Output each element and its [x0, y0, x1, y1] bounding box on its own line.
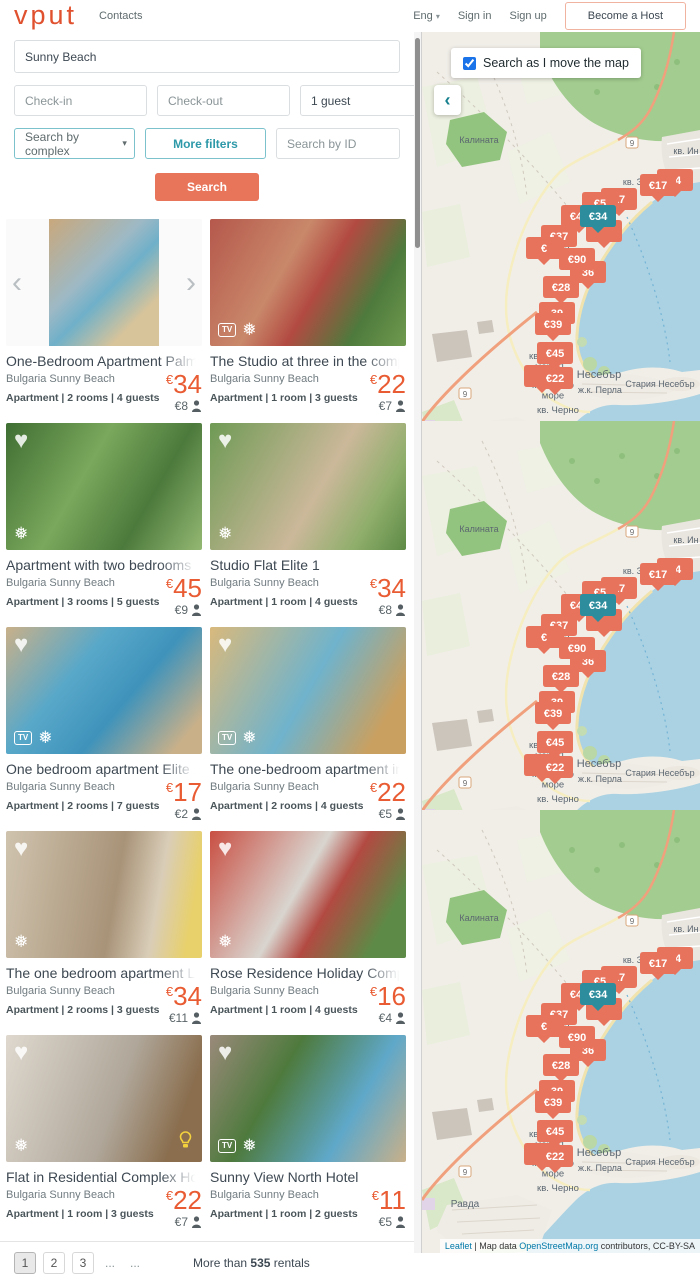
listing-card[interactable]: ♥ ❅ Rose Residence Holiday Complex Bulga… [210, 831, 406, 1025]
listing-card[interactable]: ♥ ❅ Apartment with two bedrooms in co Bu… [6, 423, 202, 617]
chevron-down-icon: ▾ [436, 12, 440, 21]
listing-price: €34 [166, 983, 202, 1009]
language-selector[interactable]: Eng ▾ [413, 10, 440, 22]
listing-price: €22 [370, 779, 406, 805]
listing-card[interactable]: ♥ TV ❅ The one-bedroom apartment in "El … [210, 627, 406, 821]
tv-icon: TV [218, 731, 236, 745]
complex-select-value: Search by complex [14, 128, 135, 159]
favorite-heart-icon[interactable]: ♥ [14, 429, 28, 453]
nav-contacts[interactable]: Contacts [99, 10, 142, 22]
tv-icon: TV [14, 731, 32, 745]
listing-meta: Apartment | 1 room | 2 guests [210, 1208, 358, 1220]
listing-location: Bulgaria Sunny Beach [210, 1189, 358, 1201]
listing-card[interactable]: ♥ ❅ Studio Flat Elite 1 Bulgaria Sunny B… [210, 423, 406, 617]
per-person-price: €7 [379, 399, 392, 413]
destination-input[interactable] [14, 40, 400, 73]
person-icon [395, 400, 406, 412]
listing-card[interactable]: TV ❅ The Studio at three in the complex … [210, 219, 406, 413]
snowflake-icon: ❅ [14, 1137, 28, 1154]
snowflake-icon: ❅ [218, 933, 232, 950]
favorite-heart-icon[interactable]: ♥ [218, 837, 232, 861]
listing-price: €22 [370, 371, 406, 397]
listing-location: Bulgaria Sunny Beach [6, 577, 160, 589]
listing-title[interactable]: One bedroom apartment Elite 1 [6, 761, 202, 779]
per-person-price: €2 [175, 807, 188, 821]
per-person-price: €4 [379, 1011, 392, 1025]
guests-input[interactable] [300, 85, 424, 116]
listing-price: €16 [370, 983, 406, 1009]
person-icon [395, 1012, 406, 1024]
person-icon [395, 604, 406, 616]
listing-title[interactable]: One-Bedroom Apartment Palm Com [6, 353, 202, 371]
list-scrollbar[interactable] [414, 32, 421, 1253]
listing-meta: Apartment | 1 room | 4 guests [210, 596, 358, 608]
pagination-ellipsis[interactable]: ... [130, 1256, 140, 1270]
favorite-heart-icon[interactable]: ♥ [218, 633, 232, 657]
person-icon [395, 808, 406, 820]
per-person-price: €5 [379, 807, 392, 821]
favorite-heart-icon[interactable]: ♥ [14, 633, 28, 657]
listing-price: €22 [166, 1187, 202, 1213]
person-icon [191, 1012, 202, 1024]
listing-title[interactable]: Flat in Residential Complex Holiday [6, 1169, 202, 1187]
listing-meta: Apartment | 1 room | 4 guests [210, 1004, 358, 1016]
listing-location: Bulgaria Sunny Beach [210, 985, 358, 997]
listing-location: Bulgaria Sunny Beach [6, 781, 160, 793]
become-host-button[interactable]: Become a Host [565, 2, 686, 30]
listing-location: Bulgaria Sunny Beach [210, 781, 364, 793]
listing-photo[interactable]: ♥ ❅ [6, 423, 202, 550]
map-attribution: Leaflet | Map data OpenStreetMap.org con… [440, 1239, 700, 1253]
osm-link[interactable]: OpenStreetMap.org [519, 1241, 598, 1251]
search-panel: Search by complex ▾ More filters Search [0, 32, 414, 215]
listing-photo-image [49, 219, 159, 346]
listing-meta: Apartment | 2 rooms | 7 guests [6, 800, 160, 812]
snowflake-icon: ❅ [14, 933, 28, 950]
snowflake-icon: ❅ [242, 729, 256, 746]
person-icon [191, 604, 202, 616]
snowflake-icon: ❅ [38, 729, 52, 746]
listing-meta: Apartment | 3 rooms | 5 guests [6, 596, 160, 608]
map-tile-section[interactable] [422, 810, 700, 1253]
listing-title[interactable]: Sunny View North Hotel [210, 1169, 406, 1187]
snowflake-icon: ❅ [218, 525, 232, 542]
listing-photo[interactable]: ♥ TV ❅ [210, 627, 406, 754]
listing-photo[interactable]: ♥ TV ❅ [210, 1035, 406, 1162]
carousel-next-icon[interactable]: › [186, 268, 196, 298]
listing-price: €11 [372, 1187, 406, 1213]
map-tile-section[interactable] [422, 32, 700, 421]
page-button-1[interactable]: 1 [14, 1252, 36, 1274]
page-button-3[interactable]: 3 [72, 1252, 94, 1274]
language-label: Eng [413, 10, 433, 22]
snowflake-icon: ❅ [242, 321, 256, 338]
listing-photo[interactable]: ♥ ❅ [6, 831, 202, 958]
sign-in-link[interactable]: Sign in [458, 10, 492, 22]
search-by-id-input[interactable] [276, 128, 400, 159]
listings-panel: Search by complex ▾ More filters Search … [0, 32, 414, 1284]
listing-meta: Apartment | 2 rooms | 3 guests [6, 1004, 160, 1016]
pagination-ellipsis[interactable]: ... [105, 1256, 115, 1270]
lamp-icon [179, 1131, 192, 1154]
carousel-prev-icon[interactable]: ‹ [12, 268, 22, 298]
listing-price: €34 [166, 371, 202, 397]
results-count-text: More than 535 rentals [193, 1256, 310, 1270]
search-move-map-label[interactable]: Search as I move the map [483, 56, 629, 70]
listing-card[interactable]: ♥ TV ❅ Sunny View North Hotel Bulgaria S… [210, 1035, 406, 1229]
listing-title[interactable]: Rose Residence Holiday Complex [210, 965, 406, 983]
person-icon [191, 400, 202, 412]
listing-photo[interactable]: ‹ › [6, 219, 202, 346]
per-person-price: €11 [169, 1011, 188, 1025]
snowflake-icon: ❅ [14, 525, 28, 542]
listing-location: Bulgaria Sunny Beach [210, 373, 358, 385]
snowflake-icon: ❅ [242, 1137, 256, 1154]
listing-location: Bulgaria Sunny Beach [6, 1189, 154, 1201]
map-panel[interactable]: Калинатакв. Инкв. Зокв. Камкакв. Черномо… [421, 32, 700, 1253]
listing-location: Bulgaria Sunny Beach [210, 577, 358, 589]
listing-meta: Apartment | 1 room | 3 guests [6, 1208, 154, 1220]
listing-photo[interactable]: ♥ TV ❅ [6, 627, 202, 754]
listing-card[interactable]: ♥ ❅ The one bedroom apartment Lifest Bul… [6, 831, 202, 1025]
listing-location: Bulgaria Sunny Beach [6, 985, 160, 997]
favorite-heart-icon[interactable]: ♥ [14, 1041, 28, 1065]
map-tile-section[interactable] [422, 421, 700, 810]
checkout-input[interactable] [157, 85, 290, 116]
search-move-map-toggle[interactable]: Search as I move the map [451, 48, 641, 78]
complex-select[interactable]: Search by complex ▾ [14, 128, 135, 159]
listing-meta: Apartment | 2 rooms | 4 guests [210, 800, 364, 812]
listing-title[interactable]: The Studio at three in the complex S [210, 353, 406, 371]
listing-meta: Apartment | 1 room | 3 guests [210, 392, 358, 404]
search-move-map-checkbox[interactable] [463, 57, 476, 70]
listing-price: €45 [166, 575, 202, 601]
vput-logo[interactable]: vput [14, 2, 77, 29]
scrollbar-thumb[interactable] [415, 38, 420, 248]
listing-title[interactable]: Studio Flat Elite 1 [210, 557, 406, 575]
favorite-heart-icon[interactable]: ♥ [14, 837, 28, 861]
person-icon [191, 808, 202, 820]
more-filters-button[interactable]: More filters [145, 128, 266, 159]
favorite-heart-icon[interactable]: ♥ [218, 1041, 232, 1065]
top-navigation-bar: vput Contacts Eng ▾ Sign in Sign up Beco… [0, 0, 700, 32]
per-person-price: €8 [175, 399, 188, 413]
tv-icon: TV [218, 1139, 236, 1153]
person-icon [395, 1216, 406, 1228]
listing-title[interactable]: The one-bedroom apartment in "El [210, 761, 406, 779]
listing-photo[interactable]: ♥ ❅ [210, 423, 406, 550]
listing-card[interactable]: ♥ ❅ Flat in Residential Complex Holiday … [6, 1035, 202, 1229]
per-person-price: €9 [175, 603, 188, 617]
page-button-2[interactable]: 2 [43, 1252, 65, 1274]
listing-title[interactable]: The one bedroom apartment Lifest [6, 965, 202, 983]
results-grid: ‹ › One-Bedroom Apartment Palm Com Bulga… [0, 215, 414, 1229]
listing-price: €34 [370, 575, 406, 601]
listing-price: €17 [166, 779, 202, 805]
collapse-map-button[interactable]: ‹ [434, 85, 461, 115]
listing-meta: Apartment | 2 rooms | 4 guests [6, 392, 160, 404]
per-person-price: €8 [379, 603, 392, 617]
listing-card[interactable]: ‹ › One-Bedroom Apartment Palm Com Bulga… [6, 219, 202, 413]
favorite-heart-icon[interactable]: ♥ [218, 429, 232, 453]
search-button[interactable]: Search [155, 173, 259, 201]
listing-title[interactable]: Apartment with two bedrooms in co [6, 557, 202, 575]
leaflet-link[interactable]: Leaflet [445, 1241, 472, 1251]
listing-photo[interactable]: TV ❅ [210, 219, 406, 346]
per-person-price: €7 [175, 1215, 188, 1229]
tv-icon: TV [218, 323, 236, 337]
checkin-input[interactable] [14, 85, 147, 116]
person-icon [191, 1216, 202, 1228]
listing-card[interactable]: ♥ TV ❅ One bedroom apartment Elite 1 Bul… [6, 627, 202, 821]
listing-photo[interactable]: ♥ ❅ [6, 1035, 202, 1162]
sign-up-link[interactable]: Sign up [509, 10, 546, 22]
listing-location: Bulgaria Sunny Beach [6, 373, 160, 385]
per-person-price: €5 [379, 1215, 392, 1229]
listing-photo[interactable]: ♥ ❅ [210, 831, 406, 958]
pagination: 1 2 3 ... ... More than 535 rentals [0, 1241, 414, 1284]
